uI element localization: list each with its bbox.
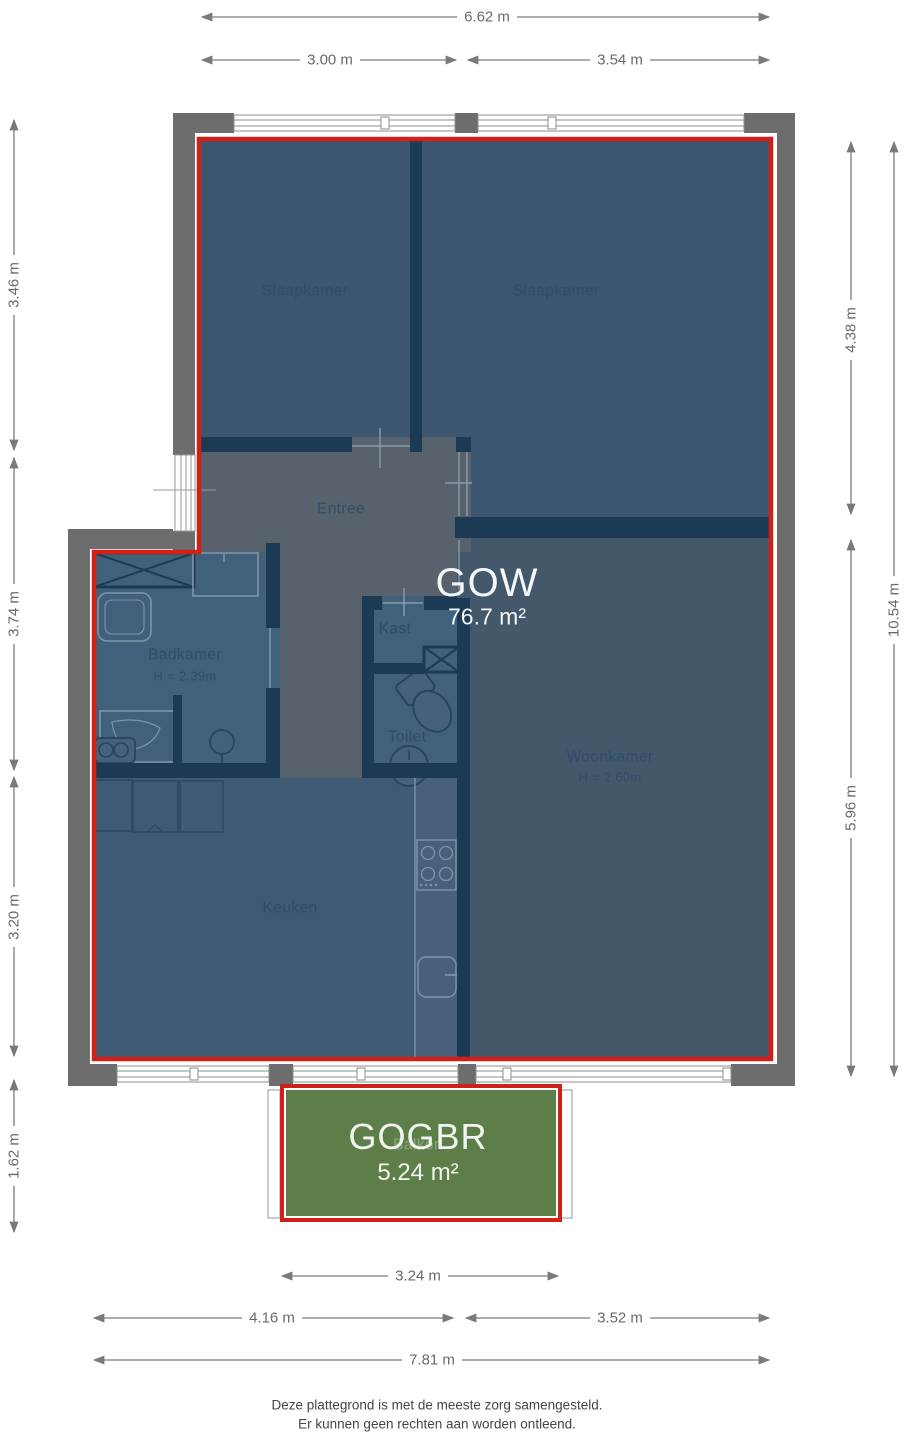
dim-left-3: 3.20 m (5, 887, 24, 947)
balcony-code-label: GOGBR (348, 1119, 487, 1155)
unit-area-label: 76.7 m² (448, 606, 526, 629)
room-label-slaapkamer-right: Slaapkamer (513, 283, 600, 299)
room-height-badkamer: H = 2.39m (153, 670, 216, 683)
balcony-area-label: 5.24 m² (377, 1161, 458, 1185)
room-label-badkamer: Badkamer (148, 647, 222, 663)
room-label-keuken: Keuken (263, 900, 318, 916)
dim-right-1: 4.38 m (842, 300, 861, 360)
dim-right-2: 5.96 m (842, 778, 861, 838)
dim-left-4: 1.62 m (5, 1126, 24, 1186)
dim-bottom-right: 3.52 m (590, 1309, 650, 1328)
dim-left-1: 3.46 m (5, 255, 24, 315)
disclaimer-line-1: Deze plattegrond is met de meeste zorg s… (272, 1398, 603, 1412)
floor-plan-page: Slaapkamer Slaapkamer Entree Badkamer H … (0, 0, 911, 1440)
room-label-kast: Kast (379, 621, 412, 637)
room-label-slaapkamer-left: Slaapkamer (262, 283, 349, 299)
dim-balcony-width: 3.24 m (388, 1267, 448, 1286)
disclaimer-line-2: Er kunnen geen rechten aan worden ontlee… (298, 1417, 576, 1431)
dim-right-total: 10.54 m (885, 576, 904, 644)
dim-bottom-total: 7.81 m (402, 1351, 462, 1370)
room-height-woonkamer: H = 2.60m (578, 771, 641, 784)
room-label-entree: Entree (317, 501, 365, 517)
dim-top-total: 6.62 m (457, 8, 517, 27)
dim-bottom-left: 4.16 m (242, 1309, 302, 1328)
room-label-toilet: Toilet (388, 729, 427, 745)
dim-left-2: 3.74 m (5, 584, 24, 644)
unit-code-label: GOW (436, 563, 539, 603)
dim-top-left: 3.00 m (300, 51, 360, 70)
dim-top-right: 3.54 m (590, 51, 650, 70)
floor-plan-drawing (0, 0, 911, 1440)
room-label-woonkamer: Woonkamer (567, 749, 654, 765)
